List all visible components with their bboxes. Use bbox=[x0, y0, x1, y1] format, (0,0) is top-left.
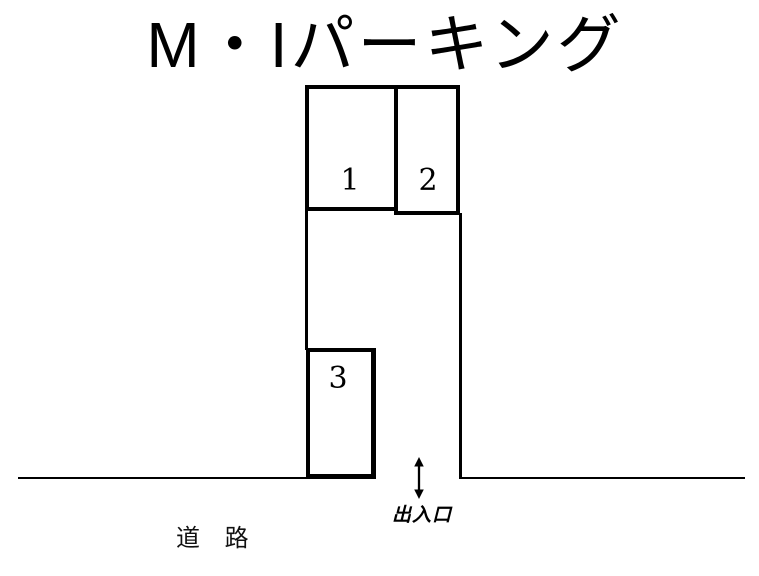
space-1-label: 1 bbox=[335, 166, 365, 196]
road-edge-line-right bbox=[461, 477, 745, 479]
lot-boundary-right-line bbox=[459, 213, 462, 479]
parking-lot-diagram: 1 2 3 出入口 道 路 bbox=[0, 0, 759, 576]
road-label: 道 路 bbox=[176, 518, 258, 553]
up-down-arrow-icon bbox=[408, 457, 430, 499]
road-edge-line-left bbox=[18, 477, 308, 479]
space-2-label: 2 bbox=[413, 166, 443, 196]
lot-boundary-left-line bbox=[305, 211, 308, 350]
entrance-exit-label: 出入口 bbox=[380, 500, 464, 527]
space-3-label: 3 bbox=[323, 364, 353, 394]
